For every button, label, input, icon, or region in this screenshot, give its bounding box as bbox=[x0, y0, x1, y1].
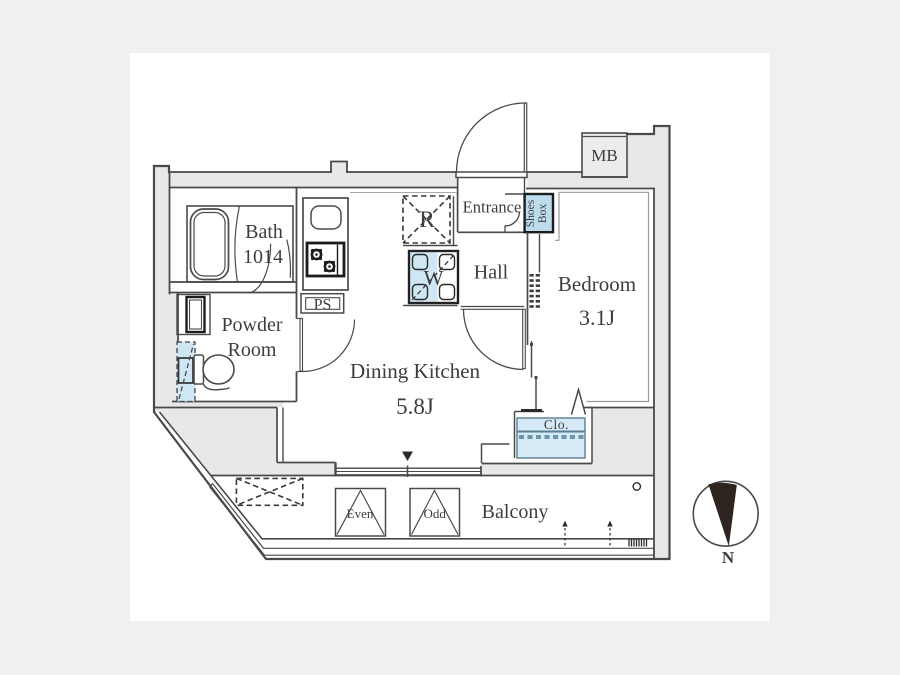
svg-text:Even: Even bbox=[347, 506, 374, 521]
svg-text:Dining Kitchen: Dining Kitchen bbox=[350, 359, 481, 383]
svg-text:1014: 1014 bbox=[243, 246, 283, 268]
svg-text:Powder: Powder bbox=[221, 314, 282, 336]
svg-text:Odd: Odd bbox=[424, 506, 447, 521]
svg-text:R: R bbox=[419, 207, 435, 232]
svg-text:PS: PS bbox=[314, 297, 332, 314]
svg-text:5.8J: 5.8J bbox=[396, 394, 434, 419]
svg-text:Entrance: Entrance bbox=[463, 198, 522, 217]
svg-text:Balcony: Balcony bbox=[482, 501, 549, 523]
svg-text:MB: MB bbox=[591, 146, 617, 165]
svg-text:Box: Box bbox=[537, 204, 549, 223]
svg-text:Hall: Hall bbox=[474, 262, 509, 284]
svg-text:W: W bbox=[424, 266, 444, 290]
svg-text:Clo.: Clo. bbox=[544, 417, 569, 432]
svg-text:Bath: Bath bbox=[245, 221, 283, 243]
svg-text:Room: Room bbox=[228, 339, 277, 361]
svg-text:Shoes: Shoes bbox=[525, 199, 537, 227]
svg-text:3.1J: 3.1J bbox=[579, 305, 616, 330]
svg-text:Bedroom: Bedroom bbox=[558, 272, 636, 296]
svg-text:N: N bbox=[722, 548, 735, 567]
